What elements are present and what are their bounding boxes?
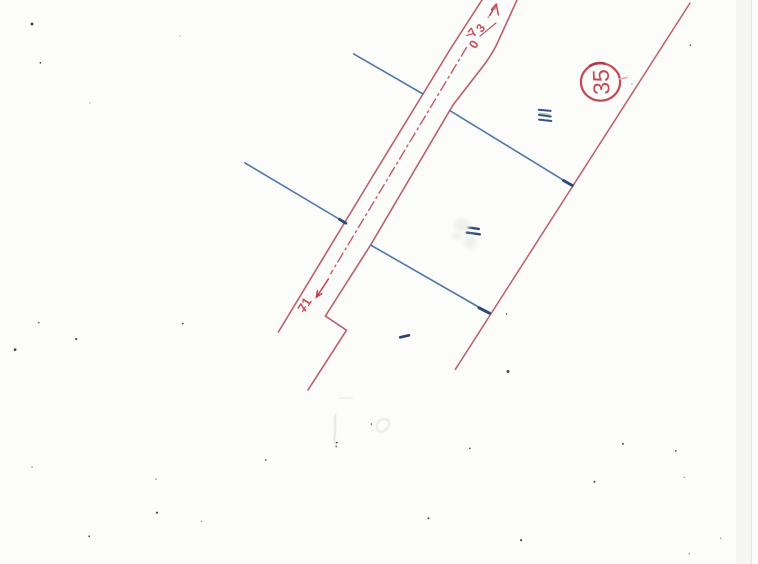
svg-text:35: 35 bbox=[588, 69, 615, 95]
